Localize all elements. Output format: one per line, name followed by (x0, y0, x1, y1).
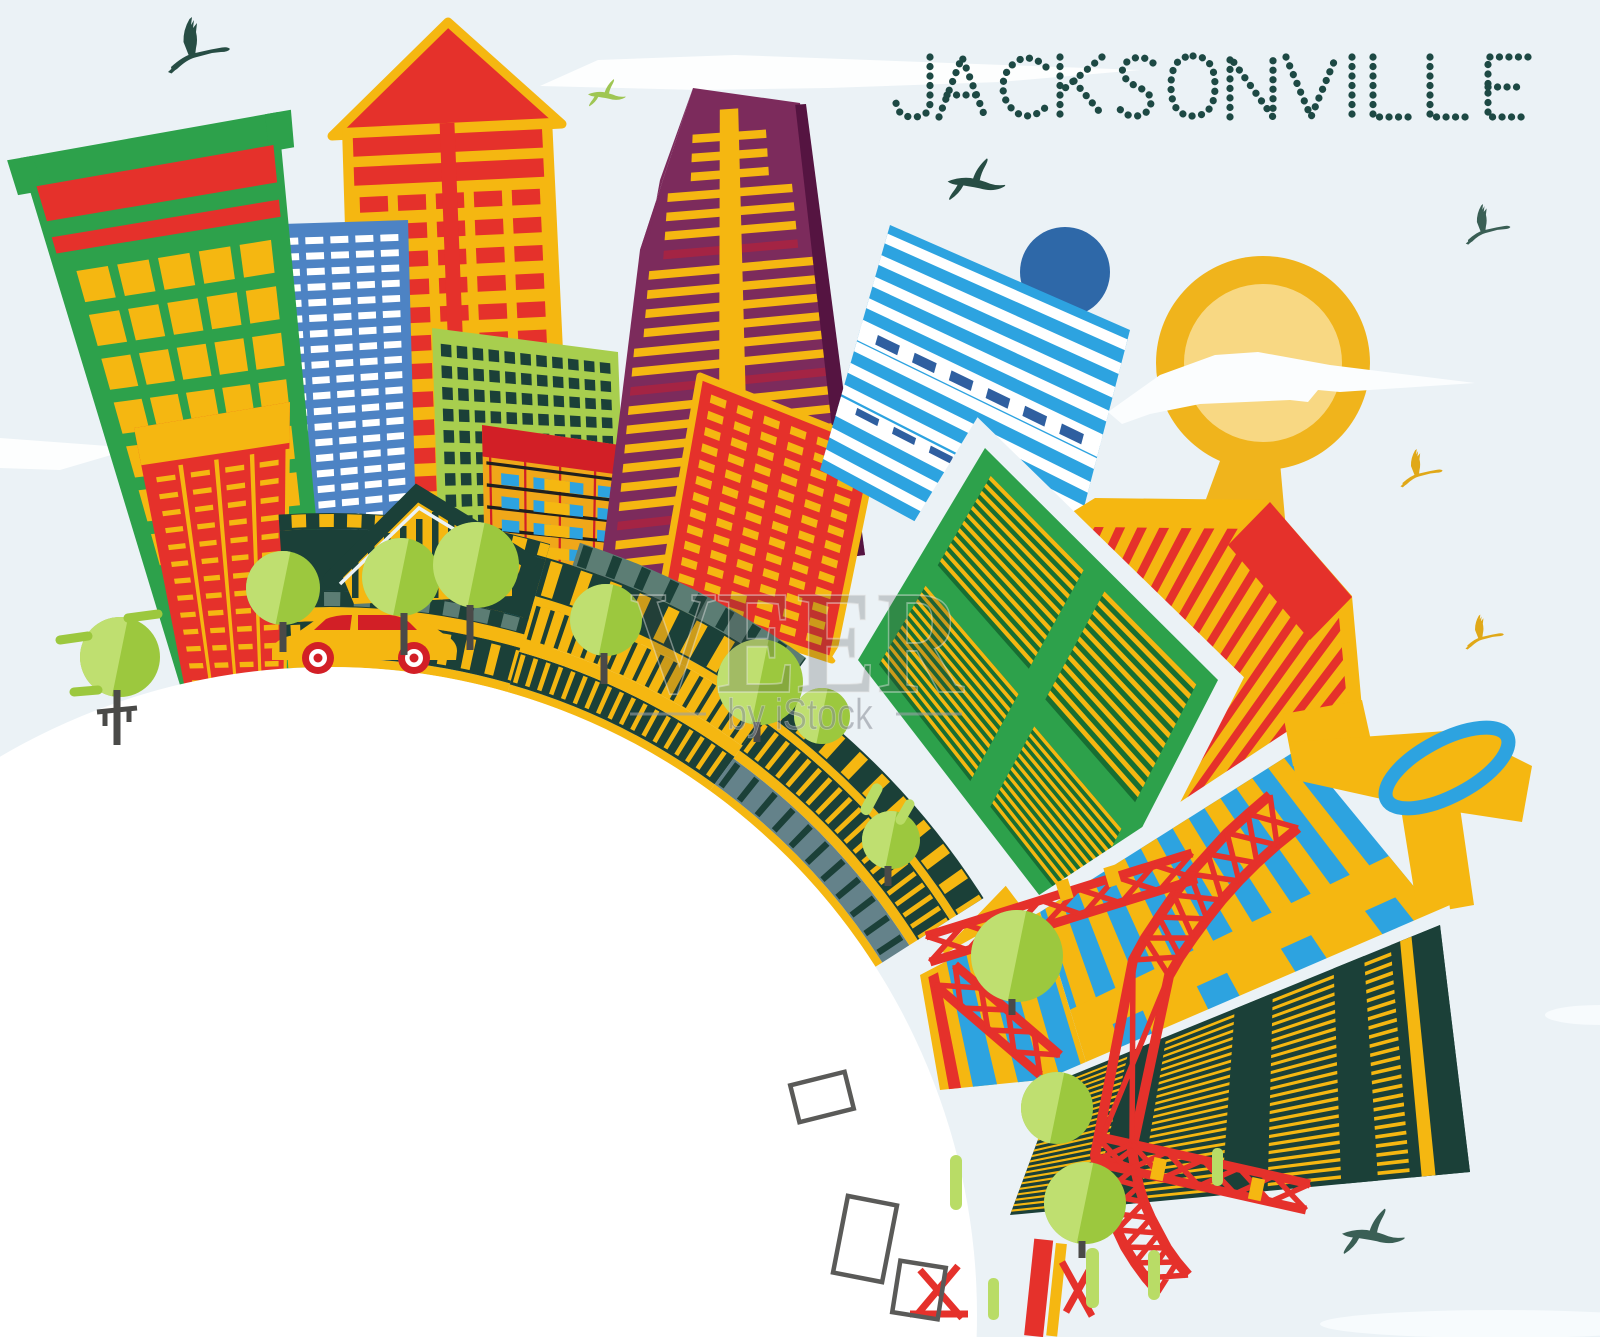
svg-text:by iStock: by iStock (727, 690, 874, 739)
